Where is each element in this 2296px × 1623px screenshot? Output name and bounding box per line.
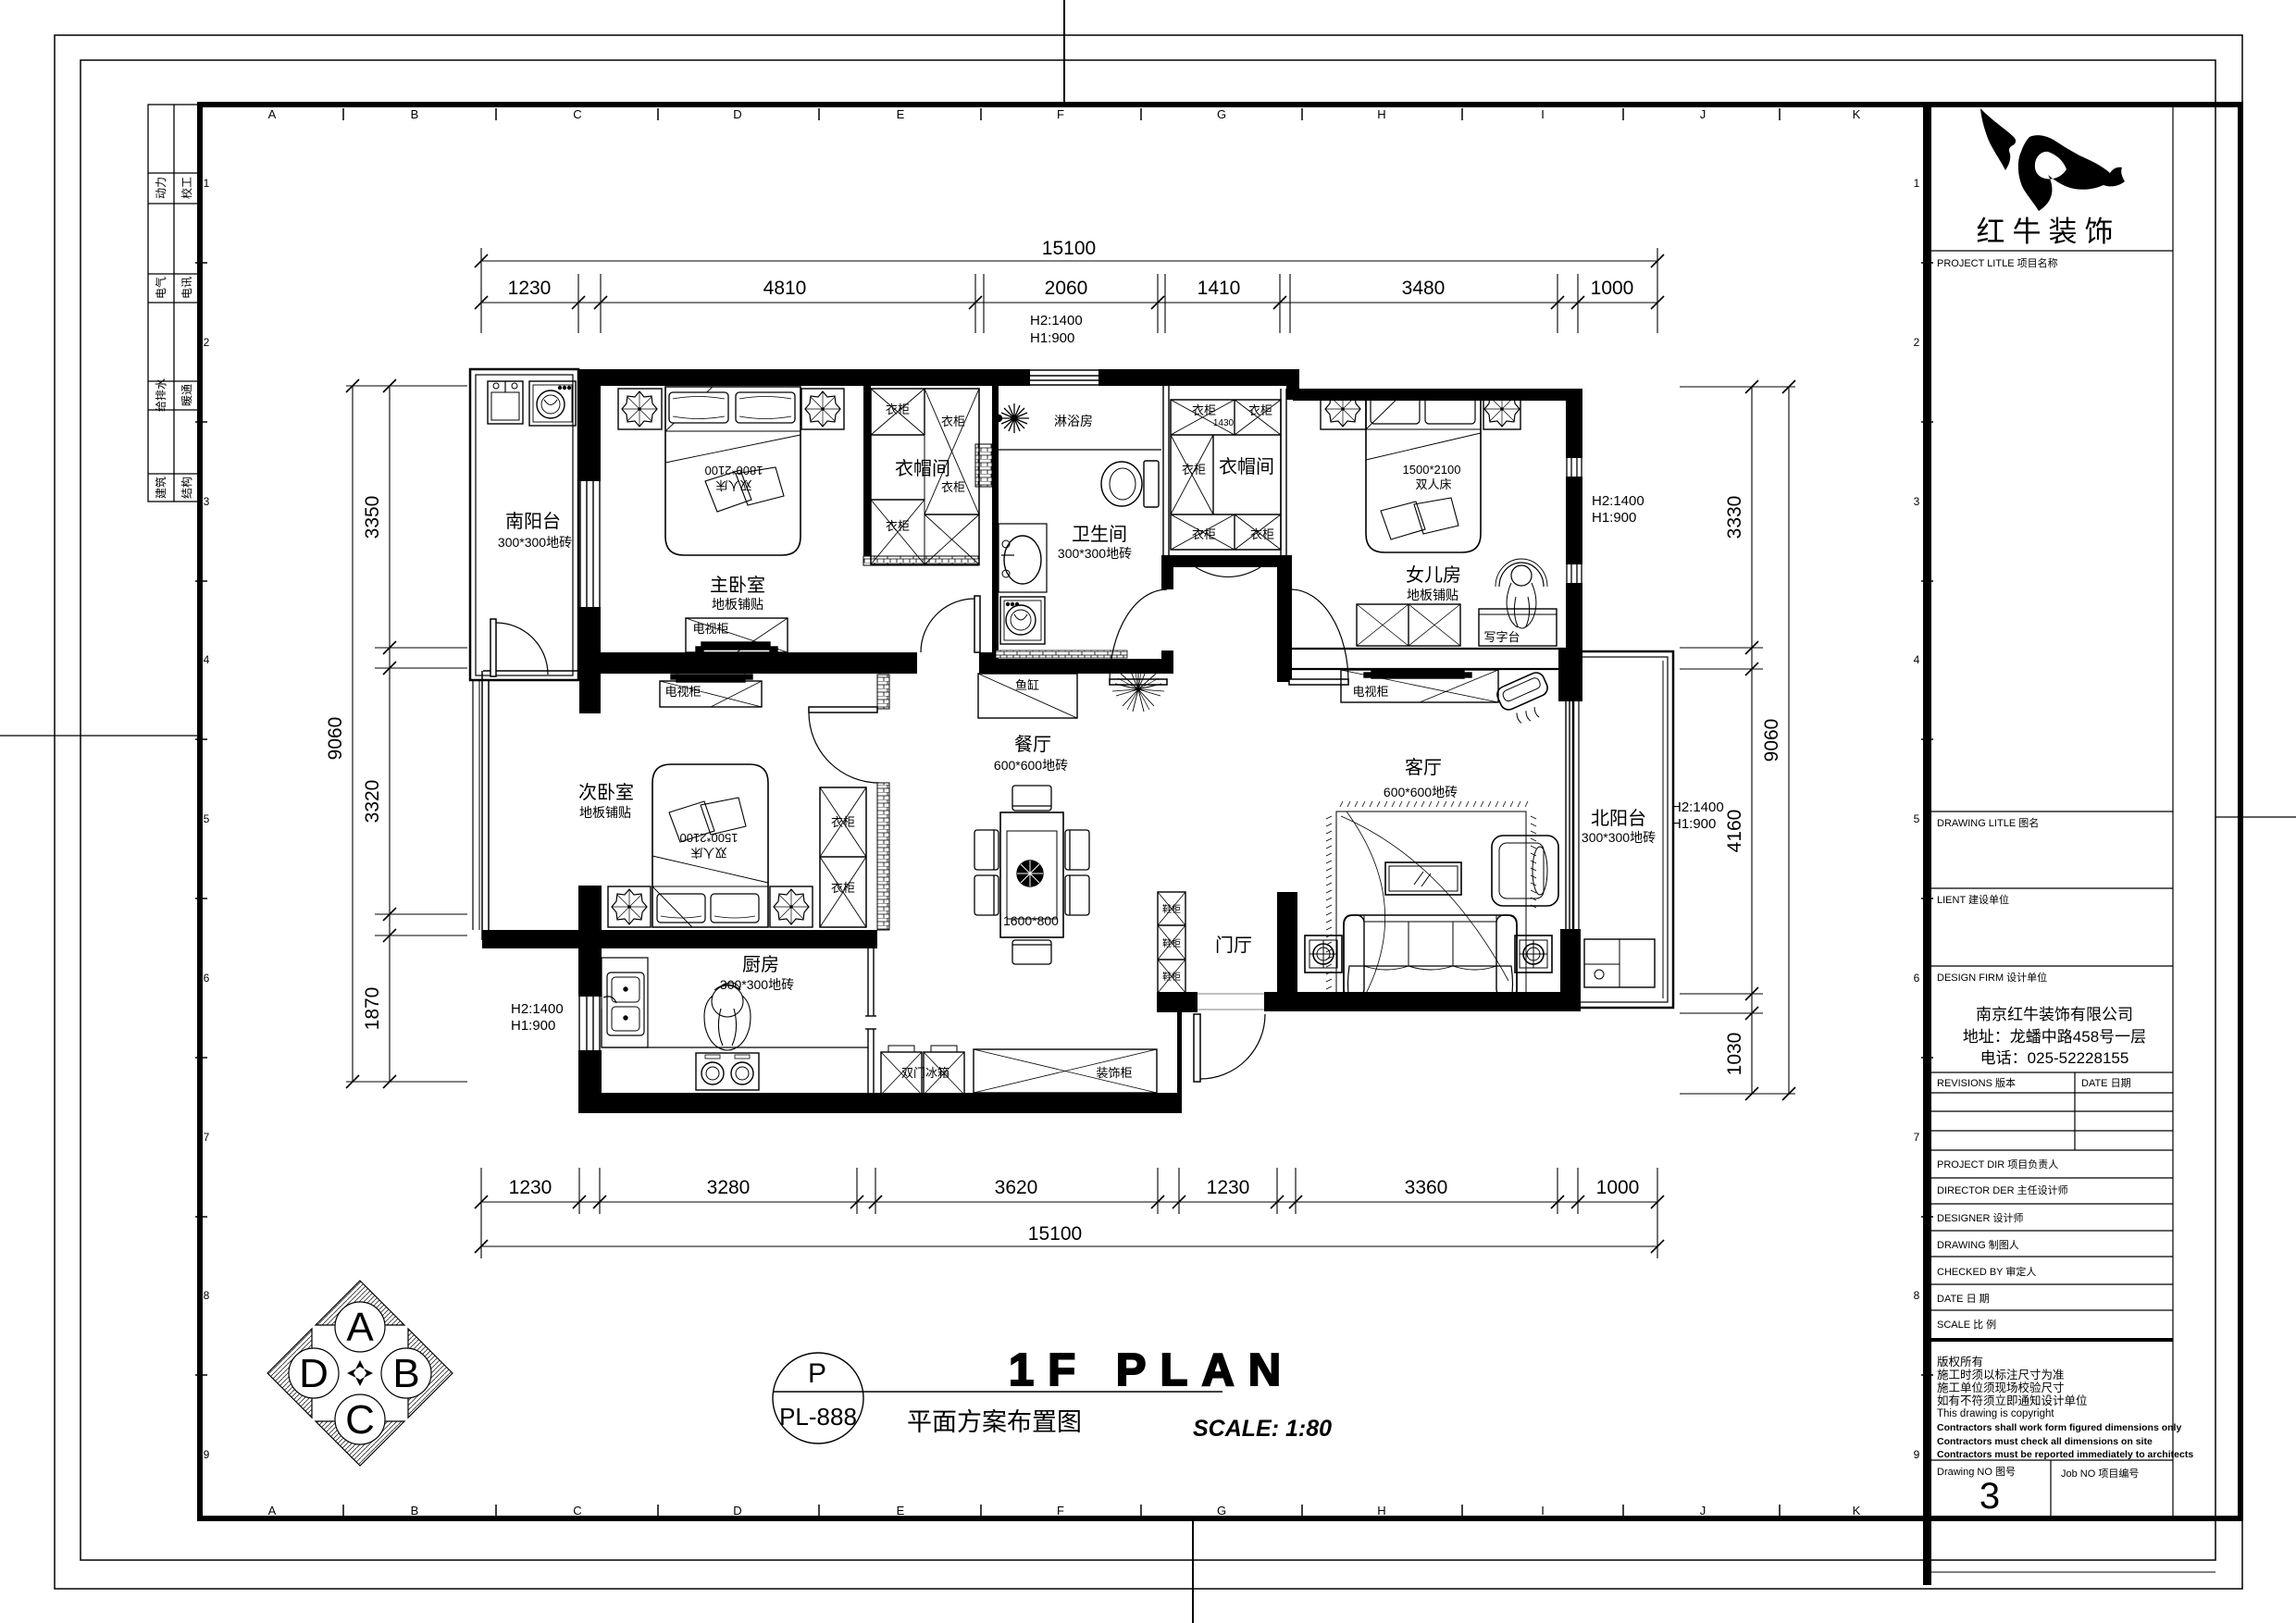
svg-text:B: B [411,107,419,121]
svg-text:C: C [345,1397,375,1443]
svg-text:H2:1400: H2:1400 [511,1001,564,1017]
svg-text:G: G [1217,1504,1226,1518]
svg-text:牛: 牛 [2013,216,2042,248]
svg-text:B: B [392,1351,419,1396]
svg-text:南京红牛装饰有限公司: 南京红牛装饰有限公司 [1976,1006,2133,1023]
svg-text:装: 装 [2049,216,2078,248]
svg-text:动力: 动力 [155,177,168,199]
svg-text:D: D [733,107,741,121]
svg-text:衣柜: 衣柜 [886,519,910,533]
svg-text:地板铺贴: 地板铺贴 [1407,588,1458,602]
svg-text:8: 8 [1914,1289,1920,1302]
svg-text:写字台: 写字台 [1483,630,1520,644]
svg-text:4: 4 [204,653,210,666]
svg-text:1: 1 [1914,177,1920,190]
svg-text:K: K [1853,1504,1861,1518]
svg-text:3: 3 [1980,1476,2000,1517]
svg-text:平面方案布置图: 平面方案布置图 [907,1408,1082,1436]
svg-text:电话：025-52228155: 电话：025-52228155 [1980,1049,2129,1067]
svg-text:北阳台: 北阳台 [1591,808,1646,829]
svg-text:餐厅: 餐厅 [1014,734,1051,755]
svg-text:D: D [733,1504,741,1518]
svg-text:2: 2 [204,336,210,349]
svg-text:1500*2100: 1500*2100 [1403,463,1461,477]
svg-text:J: J [1700,1504,1706,1518]
svg-text:3350: 3350 [362,496,383,539]
svg-text:鱼缸: 鱼缸 [1015,678,1039,692]
svg-text:淋浴房: 淋浴房 [1054,414,1093,428]
svg-text:Job NO 项目编号: Job NO 项目编号 [2061,1467,2139,1480]
svg-text:A: A [346,1305,374,1350]
svg-text:LIENT 建设单位: LIENT 建设单位 [1937,893,2009,906]
svg-text:6: 6 [204,972,210,985]
svg-text:F: F [1057,1504,1064,1518]
svg-text:2060: 2060 [1045,278,1088,299]
svg-text:PL-888: PL-888 [779,1403,857,1431]
svg-text:REVISIONS 版本: REVISIONS 版本 [1937,1076,2016,1089]
svg-text:1500*2100: 1500*2100 [680,831,738,845]
svg-text:1F PLAN: 1F PLAN [1009,1345,1295,1395]
svg-text:1410: 1410 [1198,278,1241,299]
svg-text:电视柜: 电视柜 [692,622,728,636]
svg-text:厨房: 厨房 [742,954,779,975]
svg-text:DESIGNER 设计师: DESIGNER 设计师 [1937,1212,2024,1224]
svg-text:衣柜: 衣柜 [886,403,910,416]
svg-text:CHECKED BY 审定人: CHECKED BY 审定人 [1937,1265,2036,1278]
svg-text:H2:1400: H2:1400 [1592,493,1644,509]
svg-text:C: C [573,1504,581,1518]
svg-text:4160: 4160 [1724,810,1745,853]
svg-text:客厅: 客厅 [1405,757,1442,778]
svg-text:电讯: 电讯 [180,277,193,299]
svg-text:装饰柜: 装饰柜 [1096,1066,1132,1080]
svg-text:15100: 15100 [1042,238,1096,259]
svg-text:DRAWING LITLE 图名: DRAWING LITLE 图名 [1937,816,2039,829]
svg-text:1000: 1000 [1596,1177,1640,1198]
svg-text:3480: 3480 [1402,278,1446,299]
svg-text:女儿房: 女儿房 [1406,564,1461,586]
svg-text:8: 8 [204,1289,210,1302]
svg-text:电视柜: 电视柜 [1352,685,1388,699]
svg-text:1230: 1230 [508,278,552,299]
svg-text:H: H [1377,107,1385,121]
svg-text:This drawing is copyright: This drawing is copyright [1937,1408,2054,1419]
svg-text:如有不符须立即通知设计单位: 如有不符须立即通知设计单位 [1937,1394,2088,1407]
svg-text:H1:900: H1:900 [1671,816,1716,832]
svg-text:1800*2100: 1800*2100 [705,464,763,477]
svg-text:H1:900: H1:900 [511,1018,555,1034]
svg-text:衣柜: 衣柜 [1250,527,1274,541]
svg-text:衣柜: 衣柜 [831,881,855,895]
svg-text:3360: 3360 [1405,1177,1448,1198]
svg-text:E: E [897,1504,905,1518]
svg-text:衣柜: 衣柜 [1248,403,1272,417]
svg-text:H: H [1377,1504,1385,1518]
svg-text:施工单位须现场校验尺寸: 施工单位须现场校验尺寸 [1937,1381,2065,1394]
svg-text:结构: 结构 [180,477,193,499]
svg-text:版权所有: 版权所有 [1937,1355,1983,1369]
svg-text:南阳台: 南阳台 [505,511,561,532]
svg-text:DIRECTOR DER 主任设计师: DIRECTOR DER 主任设计师 [1937,1184,2068,1196]
svg-text:衣柜: 衣柜 [1192,527,1216,541]
svg-text:Contractors must check all dim: Contractors must check all dimensions on… [1937,1436,2153,1447]
svg-text:9: 9 [1914,1448,1920,1461]
svg-text:H2:1400: H2:1400 [1030,313,1083,328]
svg-text:3280: 3280 [707,1177,751,1198]
svg-text:3330: 3330 [1724,496,1745,539]
svg-text:A: A [268,1504,277,1518]
svg-text:1430: 1430 [1213,418,1235,428]
svg-text:DATE 日期: DATE 日期 [2081,1077,2131,1089]
svg-text:电气: 电气 [154,277,168,299]
svg-text:600*600地砖: 600*600地砖 [994,758,1068,773]
svg-text:衣柜: 衣柜 [941,415,965,428]
svg-text:9: 9 [204,1448,210,1461]
svg-text:H1:900: H1:900 [1592,510,1636,526]
svg-text:E: E [897,107,905,121]
svg-text:衣柜: 衣柜 [1182,463,1206,477]
svg-text:7: 7 [204,1131,210,1144]
svg-text:15100: 15100 [1028,1223,1082,1245]
svg-text:DRAWING 制图人: DRAWING 制图人 [1937,1239,2019,1251]
svg-text:1030: 1030 [1724,1033,1745,1076]
svg-text:K: K [1853,107,1861,121]
svg-text:300*300地砖: 300*300地砖 [1582,830,1656,845]
svg-text:A: A [268,107,277,121]
svg-text:H2:1400: H2:1400 [1671,799,1724,815]
svg-text:1230: 1230 [1207,1177,1250,1198]
svg-text:PROJECT LITLE 项目名称: PROJECT LITLE 项目名称 [1937,256,2058,269]
svg-text:衣帽间: 衣帽间 [895,458,950,479]
svg-text:C: C [573,107,581,121]
svg-text:Drawing NO 图号: Drawing NO 图号 [1937,1466,2016,1478]
svg-text:次卧室: 次卧室 [578,782,634,803]
svg-text:3: 3 [1914,495,1920,508]
svg-text:双人床: 双人床 [715,478,751,492]
svg-text:门厅: 门厅 [1215,935,1252,956]
svg-text:6: 6 [1914,972,1920,985]
svg-text:5: 5 [204,812,210,825]
svg-text:4810: 4810 [763,278,807,299]
svg-text:3320: 3320 [362,780,383,824]
svg-text:3620: 3620 [995,1177,1038,1198]
svg-text:地板铺贴: 地板铺贴 [712,597,763,612]
svg-text:Contractors shall work form fi: Contractors shall work form figured dime… [1937,1422,2181,1433]
svg-text:2: 2 [1914,336,1920,349]
svg-text:衣柜: 衣柜 [941,480,965,494]
svg-text:P: P [808,1358,826,1389]
svg-text:H1:900: H1:900 [1030,330,1074,346]
svg-text:600*600地砖: 600*600地砖 [1384,785,1458,799]
svg-text:施工时须以标注尺寸为准: 施工时须以标注尺寸为准 [1937,1368,2065,1381]
svg-text:9060: 9060 [325,717,346,761]
svg-text:300*300地砖: 300*300地砖 [1058,546,1132,561]
svg-text:饰: 饰 [2085,216,2114,248]
svg-text:SCALE 比 例: SCALE 比 例 [1937,1318,1996,1331]
svg-text:5: 5 [1914,812,1920,825]
svg-text:双门冰箱: 双门冰箱 [901,1066,949,1080]
svg-text:DESIGN FIRM 设计单位: DESIGN FIRM 设计单位 [1937,971,2047,984]
svg-text:1230: 1230 [509,1177,552,1198]
svg-text:衣帽间: 衣帽间 [1219,456,1274,477]
svg-text:300*300地砖: 300*300地砖 [498,535,572,550]
svg-text:红: 红 [1977,216,2005,248]
svg-text:1000: 1000 [1591,278,1634,299]
svg-text:I: I [1541,1504,1545,1518]
svg-text:双人床: 双人床 [1415,477,1451,491]
svg-text:PROJECT DIR 项目负责人: PROJECT DIR 项目负责人 [1937,1158,2058,1171]
svg-text:卫生间: 卫生间 [1072,524,1127,545]
svg-text:DATE 日 期: DATE 日 期 [1937,1293,1990,1305]
svg-text:校工: 校工 [180,177,193,199]
svg-text:I: I [1541,107,1545,121]
svg-text:衣柜: 衣柜 [1192,403,1216,417]
svg-text:地址：龙蟠中路458号一层: 地址：龙蟠中路458号一层 [1963,1028,2146,1046]
svg-text:J: J [1700,107,1706,121]
svg-text:G: G [1217,107,1226,121]
svg-text:鞋柜: 鞋柜 [1162,971,1181,983]
svg-text:地板铺贴: 地板铺贴 [579,805,631,820]
svg-text:建筑: 建筑 [154,477,168,499]
svg-text:7: 7 [1914,1131,1920,1144]
svg-text:4: 4 [1914,653,1920,666]
svg-text:F: F [1057,107,1064,121]
svg-text:D: D [299,1351,329,1396]
svg-text:双人床: 双人床 [690,846,726,860]
svg-text:SCALE: 1:80: SCALE: 1:80 [1193,1416,1332,1442]
svg-text:主卧室: 主卧室 [710,575,765,596]
svg-text:1870: 1870 [362,987,383,1031]
svg-text:3: 3 [204,495,210,508]
svg-text:电视柜: 电视柜 [664,685,701,699]
svg-text:300*300地砖: 300*300地砖 [720,977,794,992]
svg-text:Contractors must be reported i: Contractors must be reported immediately… [1937,1449,2193,1460]
svg-text:B: B [411,1504,419,1518]
svg-text:给排水: 给排水 [155,378,168,412]
svg-text:鞋柜: 鞋柜 [1162,937,1181,949]
svg-text:1: 1 [204,177,210,190]
svg-text:衣柜: 衣柜 [831,815,855,829]
svg-text:1600*800: 1600*800 [1003,913,1059,928]
svg-text:9060: 9060 [1761,719,1782,762]
svg-text:鞋柜: 鞋柜 [1162,903,1181,915]
svg-text:暖通: 暖通 [180,384,193,406]
